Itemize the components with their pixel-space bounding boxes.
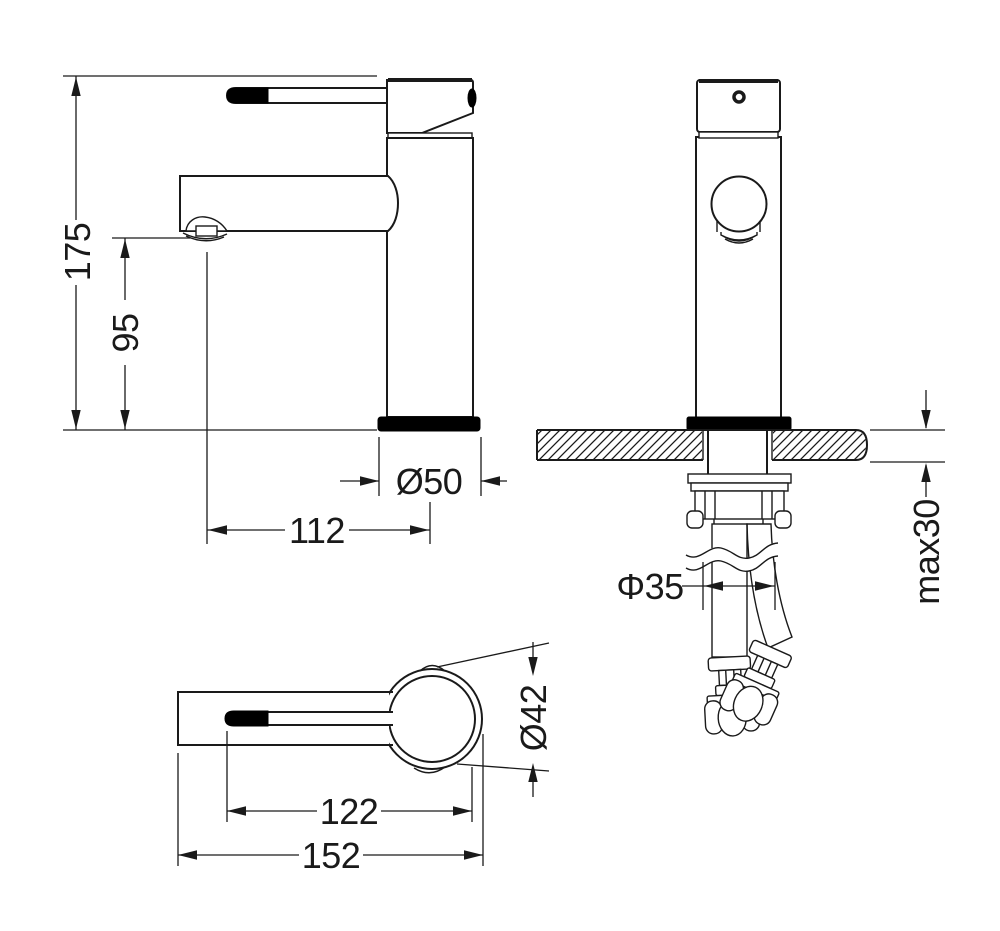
dim-label-handle-reach: 122 bbox=[320, 791, 379, 832]
front-view: Φ35 max30 bbox=[537, 80, 947, 737]
dim-label-total-length: 152 bbox=[302, 835, 361, 876]
dim-label-base-diameter: Ø50 bbox=[396, 461, 463, 502]
top-body-inner-circle bbox=[389, 676, 475, 762]
side-aerator-outlet bbox=[196, 226, 217, 236]
technical-drawing-canvas: 175 95 Ø50 112 bbox=[0, 0, 1000, 931]
side-body bbox=[387, 138, 473, 417]
top-handle-grip bbox=[225, 711, 268, 726]
side-handle-pivot bbox=[468, 89, 476, 107]
top-view: Ø42 122 152 bbox=[178, 642, 554, 876]
front-spout-circle bbox=[712, 177, 767, 232]
left-hose bbox=[712, 524, 747, 657]
dim-label-total-height: 175 bbox=[57, 223, 98, 282]
front-base-flange bbox=[687, 417, 791, 430]
dim-label-spout-height: 95 bbox=[105, 313, 146, 352]
side-base-plate bbox=[378, 417, 480, 431]
countertop bbox=[537, 430, 867, 460]
supply-hoses bbox=[686, 524, 798, 737]
side-view: 175 95 Ø50 112 bbox=[57, 76, 507, 551]
front-handle-cap bbox=[697, 80, 780, 132]
dim-label-max-thickness: max30 bbox=[906, 499, 947, 605]
front-neck-ring bbox=[699, 132, 778, 138]
front-cap-hole bbox=[734, 92, 744, 102]
dim-label-body-diameter: Ø42 bbox=[513, 685, 554, 752]
side-handle-grip bbox=[227, 88, 268, 103]
side-handle-housing bbox=[387, 80, 473, 133]
top-view-dimensions: Ø42 122 152 bbox=[178, 642, 554, 876]
dim-label-hole-diameter: Φ35 bbox=[616, 566, 683, 607]
mounting-nut-assembly bbox=[687, 474, 791, 528]
dim-label-spout-reach: 112 bbox=[289, 510, 345, 551]
technical-drawing-page: 175 95 Ø50 112 bbox=[0, 0, 1000, 931]
